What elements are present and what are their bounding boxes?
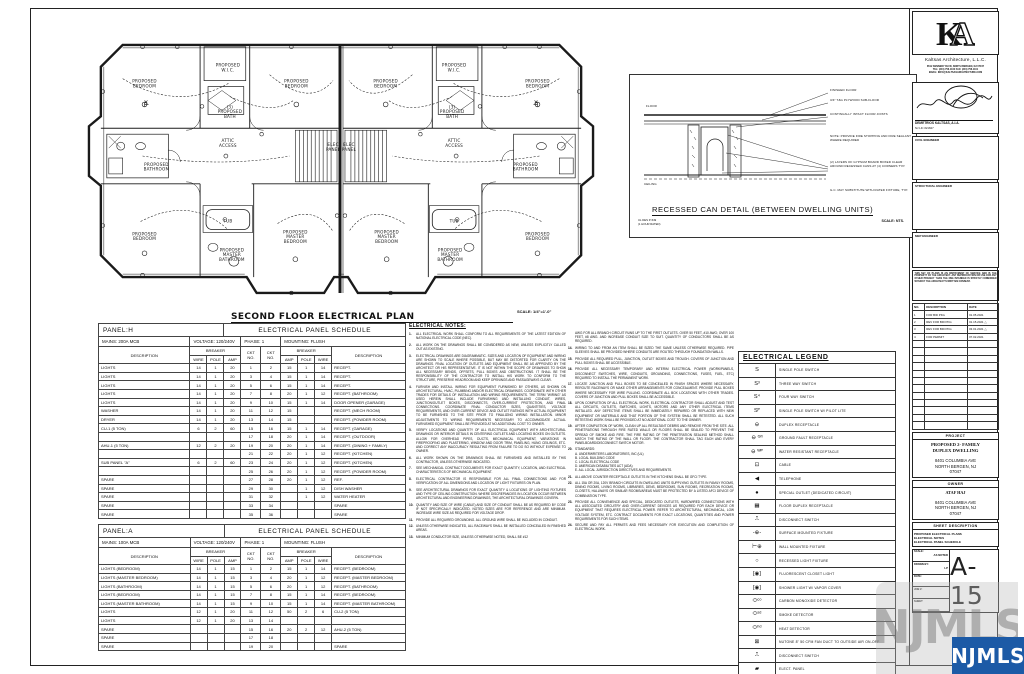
panel-mounting: MOUNTING: FLUSH (281, 538, 406, 548)
col-ckt: CKT NO. (261, 548, 281, 565)
panel-cell: RECEPT. (KITCHEN) (332, 450, 406, 459)
panel-cell: RECEPT. (KITCHEN) (332, 458, 406, 467)
revision-header: DESCRIPTION (925, 304, 968, 311)
note-text: LOCATE JUNCTION AND PULL BOXES TO BE CON… (575, 382, 734, 398)
note-text: ELECTRICAL DRAWINGS ARE DIAGRAMMATIC. SI… (416, 354, 566, 383)
electrical-note: 18.UPON COMPLETION OF ALL ELECTRICAL WOR… (568, 401, 734, 421)
panel-cell (281, 501, 298, 510)
revision-cell: 4 (913, 333, 925, 340)
legend-symbol-icon: ⎍ (739, 649, 776, 663)
note-number: 1. (409, 332, 416, 340)
note-number: 12. (409, 524, 416, 532)
note-number: 21. (568, 475, 575, 479)
panel-cell: 1 (298, 599, 315, 608)
note-text: UNLESS OTHERWISE INDICATED, ALL RACEWAYS… (416, 524, 566, 532)
sheet-description-box: SHEET DESCRIPTION PROPOSED ELECTRICAL PL… (912, 522, 999, 547)
panel-cell (190, 493, 207, 502)
panel-cell: 1 (298, 441, 315, 450)
electrical-note: 3.ELECTRICAL DRAWINGS ARE DIAGRAMMATIC. … (409, 354, 566, 383)
panel-cell: 14 (190, 582, 207, 591)
panel-cell (224, 484, 241, 493)
legend-label: RECESSED LIGHT FIXTURE (776, 554, 896, 568)
panel-cell (298, 642, 315, 651)
col-wire: WIRE (315, 355, 332, 364)
architect-license: NJ LIC #21847 (915, 126, 934, 130)
panel-cell (315, 501, 332, 510)
panel-cell: 12 (261, 407, 281, 416)
sheet-border: PROPOSEDBEDROOMPROPOSEDBEDROOMPROPOSEDW.… (30, 8, 998, 666)
panel-cell (315, 633, 332, 642)
panel-cell: 20 (224, 608, 241, 617)
panel-voltage: VOLTAGE: 120/240V (190, 337, 241, 347)
panel-cell: 15 (224, 582, 241, 591)
revision-cell: 2 (913, 318, 925, 325)
col-ckt: CKT NO. (261, 347, 281, 364)
panel-cell: SPARE (99, 493, 190, 502)
panel-cell: 12 (261, 608, 281, 617)
panel-cell: 1 (298, 381, 315, 390)
panel-row: SPARE2930112DISH WASHER (99, 484, 406, 493)
electrical-note: 8.ELECTRICAL CONTRACTOR IS RESPONSIBLE F… (409, 477, 566, 485)
note-number: 15. (568, 357, 575, 365)
revision-row-empty (913, 385, 999, 392)
note-text: MINIMUM CONDUCTOR SIZE, UNLESS OTHERWISE… (416, 535, 566, 539)
panel-cell: 18 (261, 633, 281, 642)
note-text: ELECTRICAL CONTRACTOR IS RESPONSIBLE FOR… (416, 477, 566, 485)
panel-cell: 32 (261, 493, 281, 502)
panel-row: SPARE3536SPARE (99, 510, 406, 519)
panel-row: LIGHTS1212011125026CU-2 (5 TON) (99, 608, 406, 617)
panel-cell: AHU-1 (5 TON) (99, 441, 190, 450)
panel-cell (298, 510, 315, 519)
panel-cell: LIGHTS (99, 372, 190, 381)
panel-name: PANEL:A (99, 525, 225, 538)
panel-cell: 10 (261, 398, 281, 407)
panel-cell: 14 (315, 398, 332, 407)
revision-cell (913, 400, 925, 407)
panel-cell: 15 (281, 565, 298, 574)
panel-cell: 14 (190, 407, 207, 416)
panel-cell: 14 (190, 565, 207, 574)
legend-label: THREE WAY SWITCH (776, 377, 896, 391)
panel-cell: 20 (224, 389, 241, 398)
firm-name: Kaltsas Architecture, L.L.C. (912, 57, 999, 63)
civil-engineer-label: CIVIL ENGINEER (915, 138, 939, 142)
panel-cell: 15 (281, 398, 298, 407)
legend-row: -⊕-SURFACE MOUNTED FIXTURE (739, 527, 896, 541)
detail-callout: CEILING (644, 183, 674, 187)
legend-row: ⎍DISCONNECT SWITCH (739, 649, 896, 663)
col-pole: POLE (207, 355, 224, 364)
panel-cell: 20 (281, 432, 298, 441)
room-label: PROPOSEDMASTERBEDROOM (374, 229, 398, 244)
drawn-by-value: LP (914, 566, 948, 570)
legend-symbol-icon: S⁴ (739, 391, 776, 405)
panel-cell: 16 (261, 625, 281, 634)
legend-label: FLUORESCENT CLOSET LIGHT (776, 567, 896, 581)
panel-cell: 1 (207, 389, 224, 398)
svg-text:A: A (950, 16, 975, 51)
panel-row: AHU-1 (5 TON)12220192020114RECEPT. (DINI… (99, 441, 406, 450)
room-label: PROPOSEDMASTERBEDROOM (283, 229, 308, 244)
note-number: 18. (568, 401, 575, 421)
panel-row: LIGHTS (MASTER BEDROOM)141153420112RECEP… (99, 573, 406, 582)
panel-cell: 60 (224, 424, 241, 433)
panel-cell (207, 484, 224, 493)
revision-cell (913, 414, 925, 421)
panel-cell: 7 (241, 389, 261, 398)
panel-cell (207, 450, 224, 459)
revision-cell (968, 400, 999, 407)
panel-cell (224, 450, 241, 459)
panel-cell (224, 510, 241, 519)
sheet-description-label: SHEET DESCRIPTION (913, 523, 998, 530)
panel-row: LIGHTS141205615114RECEPT. (99, 381, 406, 390)
note-text: ALL 15A OR 20A, 120V BRANCH CIRCUITS IN … (575, 481, 734, 497)
legend-symbol-icon: ⎍ (739, 513, 776, 527)
panel-cell: 8 (261, 389, 281, 398)
legend-symbol-icon: ⬭ʰᵈ (739, 622, 776, 636)
col-description: DESCRIPTION (99, 347, 190, 364)
panel-cell (190, 501, 207, 510)
revision-cell (925, 340, 968, 347)
panel-cell: 1 (207, 599, 224, 608)
panel-cell: LIGHTS (MASTER BATHROOM) (99, 599, 191, 608)
panel-cell: 15 (224, 573, 241, 582)
legend-row: S³THREE WAY SWITCH (739, 377, 896, 391)
owner-label: OWNER (913, 481, 998, 488)
panel-cell: 1 (207, 565, 224, 574)
panel-cell: 20 (224, 415, 241, 424)
detail-callout: 3/4" T&G PLYWOOD SUB-FLOOR (830, 99, 912, 103)
mep-engineer-box: MEP ENGINEER (912, 232, 999, 268)
revision-cell (925, 348, 968, 355)
panel-cell: 17 (241, 432, 261, 441)
project-label: PROJECT (913, 433, 998, 440)
note-number: 2. (409, 343, 416, 351)
panel-row: WASHER14120111215RECEPT. (MECH ROOM) (99, 407, 406, 416)
panel-cell: 11 (241, 608, 261, 617)
panel-cell: 14 (315, 441, 332, 450)
panel-cell: 5 (241, 582, 261, 591)
panel-cell: 14 (190, 389, 207, 398)
panel-cell (190, 475, 207, 484)
electrical-legend: ELECTRICAL LEGEND SSINGLE POLE SWITCHS³T… (738, 351, 896, 674)
panel-row: LIGHTS1412091015114DOOR OPENER (GARAGE) (99, 398, 406, 407)
legend-row: ▦FLOOR DUPLEX RECEPTACLE (739, 499, 896, 513)
panel-cell: 60 (224, 458, 241, 467)
legend-label: SPECIAL OUTLET (DEDICATED CIRCUIT) (776, 486, 896, 500)
note-text: PROVIDE ALL NECESSARY TEMPORARY AND INTE… (575, 367, 734, 379)
panel-cell (190, 450, 207, 459)
legend-row: ○RECESSED LIGHT FIXTURE (739, 554, 896, 568)
architect-name: DEMETRIOS KALTSAS, A.I.A. (915, 120, 993, 125)
col-breaker: BREAKER (190, 347, 241, 356)
panel-cell: 14 (190, 398, 207, 407)
col-amp: AMP (224, 556, 241, 565)
panel-cell: SPARE (99, 642, 191, 651)
panel-cell: REF. (332, 475, 406, 484)
legend-label: FLOOR DUPLEX RECEPTACLE (776, 499, 896, 513)
revision-cell: FOR BID PKG (925, 311, 968, 318)
revision-cell (925, 422, 968, 429)
panel-cell: 1 (207, 582, 224, 591)
panel-cell: 12 (315, 625, 332, 634)
legend-label: WALL MOUNTED FIXTURE (776, 540, 896, 554)
panel-cell: 2 (207, 441, 224, 450)
architect-signature-block: DEMETRIOS KALTSAS, A.I.A. NJ LIC #21847 (912, 82, 999, 134)
panel-cell: 15 (224, 599, 241, 608)
legend-symbol-icon: ⊡ (739, 459, 776, 473)
revision-row-empty (913, 400, 999, 407)
note-number: 5. (409, 428, 416, 453)
panel-cell: 1 (207, 364, 224, 373)
panel-cell: 6 (190, 424, 207, 433)
note-number: 20. (568, 447, 575, 472)
panel-cell: RECEPT. (BEDROOM) (332, 590, 406, 599)
panel-cell: LIGHTS (99, 389, 190, 398)
revision-cell (968, 340, 999, 347)
revision-cell (913, 422, 925, 429)
panel-cell (224, 642, 241, 651)
panel-phase: PHASE: 1 (241, 337, 281, 347)
panel-cell: 14 (261, 616, 281, 625)
room-label: ATTICACCESS (219, 138, 237, 148)
revision-cell (925, 385, 968, 392)
panel-cell (190, 467, 207, 476)
panel-row: CU-1 (5 TON)6260151615114RECEPT. (GARAGE… (99, 424, 406, 433)
col-amp: AMP (281, 355, 298, 364)
room-label: TUB (449, 219, 459, 224)
panel-row: SPARE3132112WATER HEATER (99, 493, 406, 502)
panel-cell: 14 (315, 372, 332, 381)
panel-cell (281, 484, 298, 493)
revision-cell (913, 392, 925, 399)
panel-cell: 1 (298, 565, 315, 574)
revision-row-empty (913, 370, 999, 377)
panel-cell: RECEPT. (332, 372, 406, 381)
col-amp: AMP (281, 556, 298, 565)
panel-cell: DOOR OPENER (GARAGE) (332, 398, 406, 407)
legend-row: ⬭ᶜᵒCARBON MONOXIDE DETECTOR (739, 595, 896, 609)
panel-cell: 12 (190, 441, 207, 450)
room-label: PROPOSEDBATHROOM (144, 162, 170, 172)
panel-cell: 14 (190, 372, 207, 381)
revision-cell: REV FOR BID PKG (925, 326, 968, 333)
legend-row: ⊖ ᵂᴾWATER RESISTANT RECEPTACLE (739, 445, 896, 459)
revision-row: 1FOR BID PKG01.05.2021 (913, 311, 999, 318)
col-description: DESCRIPTION (99, 548, 191, 565)
panel-cell: 8 (261, 590, 281, 599)
panel-cell: 1 (298, 424, 315, 433)
revision-cell: 07.02.2021 (968, 333, 999, 340)
panel-cell: 6 (190, 458, 207, 467)
note-number: 3. (409, 354, 416, 383)
note-text: UPON COMPLETION OF ALL ELECTRICAL WORK, … (575, 401, 734, 421)
legend-symbol-icon: ⬭ᶜᵒ (739, 595, 776, 609)
panel-cell (298, 407, 315, 416)
drawn-row: DRAWN BY:LP (913, 562, 949, 574)
panel-title: ELECTRICAL PANEL SCHEDULE (224, 525, 405, 538)
panel-cell: 30 (261, 484, 281, 493)
panel-cell (315, 642, 332, 651)
detail-scale: SCALE: NTS. (881, 219, 904, 223)
panel-cell (315, 616, 332, 625)
panel-cell: 1 (298, 364, 315, 373)
legend-symbol-icon: S³ (739, 377, 776, 391)
room-label: (3)PROPOSEDBATH (218, 104, 243, 119)
panel-cell: 14 (190, 599, 207, 608)
panel-h-schedule: PANEL:HELECTRICAL PANEL SCHEDULE MAINS: … (98, 323, 406, 519)
panel-cell: 16 (261, 424, 281, 433)
scale-row: SCALE:AS NOTED (913, 550, 949, 562)
panel-cell: 29 (241, 484, 261, 493)
panel-row: DRYER14120131415RECEPT. (POWDER ROOM) (99, 415, 406, 424)
electrical-note: 16.PROVIDE ALL NECESSARY TEMPORARY AND I… (568, 367, 734, 379)
panel-cell: 19 (241, 441, 261, 450)
note-text: PROVIDE ALL REQUIRED PULL, JUNCTION, OUT… (575, 357, 734, 365)
note-number (568, 331, 575, 343)
njmls-badge[interactable]: NJMLS (952, 637, 1024, 674)
scale-value: AS NOTED (914, 553, 948, 557)
project-box: PROJECT PROPOSED 2- FAMILY DUPLEX DWELLI… (912, 432, 999, 478)
panel-cell: 12 (315, 467, 332, 476)
panel-row: LIGHTS141203415114RECEPT. (99, 372, 406, 381)
revision-cell (913, 355, 925, 362)
panel-cell (224, 475, 241, 484)
panel-cell: 12 (315, 450, 332, 459)
panel-cell: 1 (298, 573, 315, 582)
revision-cell: FOR PERMIT (925, 333, 968, 340)
note-text: VERIFY LOCATIONS AND QUANTITY OF ALL ELE… (416, 428, 566, 453)
panel-cell: 14 (315, 590, 332, 599)
note-number: 4. (409, 385, 416, 426)
room-label: PROPOSEDBEDROOM (525, 79, 550, 89)
panel-cell: 6 (315, 608, 332, 617)
note-number: 10. (409, 503, 416, 515)
revision-cell (925, 400, 968, 407)
panel-cell: 50 (281, 608, 298, 617)
col-description: DESCRIPTION (332, 548, 406, 565)
legend-row: S⁴FOUR WAY SWITCH (739, 391, 896, 405)
panel-cell: 36 (261, 510, 281, 519)
panel-row: SPARE1718 (99, 633, 406, 642)
floor-plan-drawing: PROPOSEDBEDROOMPROPOSEDBEDROOMPROPOSEDW.… (83, 17, 599, 305)
note-number: 16. (568, 367, 575, 379)
revision-cell (913, 363, 925, 370)
col-amp: AMP (224, 355, 241, 364)
room-label: PROPOSEDMASTERBATHROOM (219, 247, 245, 262)
panel-cell: 1 (207, 616, 224, 625)
col-wire: WIRE (190, 355, 207, 364)
electrical-note: 5.VERIFY LOCATIONS AND QUANTITY OF ALL E… (409, 428, 566, 453)
panel-cell: 22 (261, 450, 281, 459)
electrical-note: 1.ALL ELECTRICAL WORK SHALL CONFORM TO A… (409, 332, 566, 340)
panel-cell (99, 432, 190, 441)
panel-cell: 1 (298, 389, 315, 398)
panel-cell: 20 (281, 475, 298, 484)
panel-cell: 15 (224, 565, 241, 574)
note-number: 14. (568, 346, 575, 354)
panel-cell (190, 633, 207, 642)
panel-cell: RECEPT. (POWDER ROOM) (332, 467, 406, 476)
panel-cell: 6 (261, 381, 281, 390)
legend-row: [◉]FLUORESCENT CLOSET LIGHT (739, 567, 896, 581)
panel-cell (332, 633, 406, 642)
panel-cell (298, 633, 315, 642)
legend-row: ⊢⊕WALL MOUNTED FIXTURE (739, 540, 896, 554)
legend-symbol-icon: ⊠ (739, 635, 776, 649)
revision-cell (968, 407, 999, 414)
panel-cell: 1 (207, 381, 224, 390)
panel-cell: LIGHTS (99, 381, 190, 390)
panel-cell: 18 (261, 432, 281, 441)
note-number: 23. (568, 500, 575, 520)
panel-cell: 14 (261, 415, 281, 424)
panel-cell: 15 (281, 407, 298, 416)
panel-cell: LIGHTS (99, 364, 190, 373)
revision-cell (925, 363, 968, 370)
panel-cell: 12 (315, 582, 332, 591)
panel-cell (315, 510, 332, 519)
panel-cell: 14 (315, 599, 332, 608)
legend-row: SSINGLE POLE SWITCH (739, 364, 896, 378)
legend-symbol-icon: ▦ (739, 499, 776, 513)
legend-label: DUPLEX RECEPTACLE (776, 418, 896, 432)
date-label: DATE: (914, 575, 948, 578)
panel-cell: 14 (190, 381, 207, 390)
legend-row: ▰ELECT. PANEL (739, 663, 896, 674)
electrical-note: 19.AFTER COMPLETION OF WORK, CLEAN UP AL… (568, 424, 734, 444)
panel-cell (224, 625, 241, 634)
panel-cell: SPARE (99, 475, 190, 484)
panel-cell: 20 (224, 398, 241, 407)
legend-row: SᴾSINGLE POLE SWITCH W/ PILOT LITE (739, 404, 896, 418)
panel-cell: RECEPT. (DINING + FAMILY) (332, 441, 406, 450)
recessed-can-detail: FINISHED FLOOR3/4" T&G PLYWOOD SUB-FLOOR… (629, 74, 917, 238)
legend-label: SURFACE MOUNTED FIXTURE (776, 527, 896, 541)
panel-cell: 12 (315, 389, 332, 398)
note-number: 8. (409, 477, 416, 485)
panel-row: LIGHTS (BEDROOM)141151215114RECEPT. (BED… (99, 565, 406, 574)
note-text: PROVIDE ALL CONVENIENCE AND SPECIAL, DED… (575, 500, 734, 520)
col-pole: POLE (298, 355, 315, 364)
panel-cell (332, 616, 406, 625)
panel-cell: WATER HEATER (332, 493, 406, 502)
owner-address: 8401 COLUMBIA AVE NORTH BERGEN, NJ 07047 (913, 498, 998, 519)
detail-callout: NOTE: PROVIDE FIRE STOPPING AND FIRE SEA… (830, 135, 912, 143)
panel-cell: RECEPT. (MECH ROOM) (332, 407, 406, 416)
electrical-note: AWG FOR ALL BRANCH CIRCUIT RUNS UP TO TH… (568, 331, 734, 343)
civil-engineer-box: CIVIL ENGINEER (912, 136, 999, 180)
panel-cell: 1 (207, 608, 224, 617)
panel-cell: SPARE (332, 501, 406, 510)
revision-cell (913, 370, 925, 377)
revision-row-empty (913, 363, 999, 370)
panel-title: ELECTRICAL PANEL SCHEDULE (224, 324, 406, 337)
note-number: 17. (568, 382, 575, 398)
electrical-note: 9.SEE ARCHITECTURAL DRAWINGS FOR EXACT Q… (409, 488, 566, 500)
panel-cell (207, 642, 224, 651)
legend-symbol-icon: ⊖ (739, 418, 776, 432)
revision-row-empty (913, 377, 999, 384)
panel-cell: LIGHTS (BATHROOM) (99, 582, 191, 591)
panel-cell: 20 (224, 381, 241, 390)
panel-cell: RECEPT. (332, 364, 406, 373)
panel-cell: 1 (298, 450, 315, 459)
panel-row: SPARE151620212AHU-2 (5 TON) (99, 625, 406, 634)
legend-row: ⊡CABLE (739, 459, 896, 473)
